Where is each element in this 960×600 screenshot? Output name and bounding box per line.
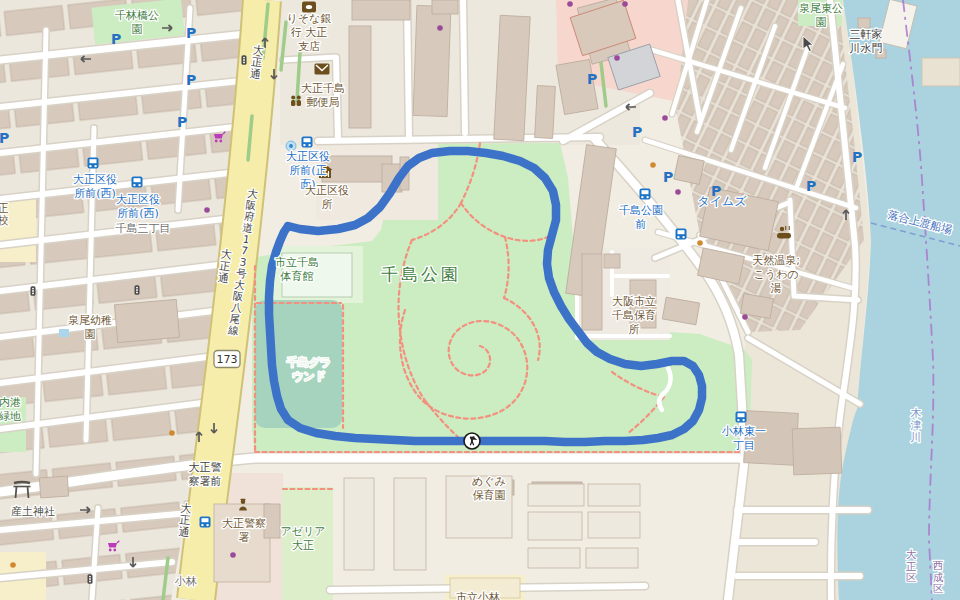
parking-icon: P — [111, 31, 121, 47]
svg-text:173: 173 — [217, 353, 238, 366]
bus-stop-icon — [200, 517, 211, 528]
map-label: めぐみ保育園 — [472, 475, 506, 502]
building — [264, 504, 280, 538]
map-label: 木津川 — [911, 407, 922, 444]
building — [528, 512, 582, 540]
svg-text:P: P — [852, 149, 862, 165]
parking-icon: P — [186, 72, 196, 88]
map-label: 大正区役所前(西) — [73, 173, 117, 200]
map-label: 大正千島郵便局 — [301, 82, 345, 109]
building — [349, 26, 371, 128]
map-label: 正校 — [0, 202, 9, 227]
map-base-tiles: PPPPPPPPPPP173 千林橋公園りそな銀行 大正支店大正千島郵便局大正区… — [0, 0, 960, 600]
parking-icon: P — [852, 149, 862, 165]
shop-dot-icon — [567, 1, 573, 7]
food-dot-icon — [10, 562, 16, 568]
shop-dot-icon — [230, 552, 236, 558]
parking-icon: P — [806, 178, 816, 194]
building — [582, 254, 602, 330]
map-label: 大正区 — [906, 548, 917, 583]
building — [114, 299, 179, 342]
building — [528, 484, 584, 506]
map-label: 千島公園 — [381, 264, 461, 284]
map-label: 産土神社 — [11, 505, 55, 518]
parking-icon: P — [632, 124, 642, 140]
route-start-marker — [464, 433, 480, 449]
bus-stop-icon — [302, 137, 313, 148]
parking-icon: P — [0, 130, 9, 146]
building — [432, 0, 458, 14]
svg-text:P: P — [663, 169, 673, 185]
route-shield-173: 173 — [214, 351, 240, 368]
traffic-signal-icon — [135, 285, 140, 295]
building — [322, 156, 392, 182]
shop-dot-icon — [614, 55, 620, 61]
svg-text:P: P — [0, 130, 9, 146]
building — [792, 427, 842, 475]
svg-text:P: P — [806, 178, 816, 194]
svg-text:P: P — [111, 31, 121, 47]
traffic-signal-icon — [242, 55, 247, 65]
shop-dot-icon — [742, 314, 748, 320]
traffic-signal-icon — [31, 286, 36, 296]
map-canvas[interactable]: PPPPPPPPPPP173 千林橋公園りそな銀行 大正支店大正千島郵便局大正区… — [0, 0, 960, 600]
bus-stop-icon — [676, 229, 687, 240]
map-label: 大正区役所前(西) — [116, 193, 160, 220]
map-label: タイムズ — [697, 194, 747, 208]
bank-icon — [302, 2, 316, 13]
bus-stop-icon — [736, 412, 747, 423]
post-office-icon — [315, 64, 330, 75]
building — [413, 5, 451, 116]
shop-dot-icon — [204, 207, 210, 213]
map-label: 千島三丁目 — [116, 222, 171, 235]
map-label: 市立小林 — [456, 591, 500, 600]
shop-dot-icon — [622, 1, 628, 7]
building — [352, 0, 410, 20]
parking-icon: P — [663, 169, 673, 185]
pool-icon — [59, 329, 69, 337]
map-label: 内港緑地 — [0, 396, 21, 423]
building — [922, 58, 960, 86]
svg-text:P: P — [587, 71, 597, 87]
food-dot-icon — [169, 430, 175, 436]
building — [344, 478, 374, 570]
svg-text:P: P — [186, 72, 196, 88]
parking-icon: P — [587, 71, 597, 87]
map-label: 三軒家川水門 — [850, 28, 883, 55]
parking-icon: P — [186, 25, 196, 41]
food-dot-icon — [697, 240, 703, 246]
building — [394, 478, 426, 570]
building — [586, 548, 638, 568]
shop-dot-icon — [437, 25, 443, 31]
bus-stop-icon — [88, 158, 99, 169]
traffic-signal-icon — [88, 574, 93, 584]
food-dot-icon — [650, 162, 656, 168]
shop-dot-icon — [662, 115, 668, 121]
map-label: 大正警察署前 — [189, 461, 222, 488]
shop-dot-icon — [675, 189, 681, 195]
map-label: 千島グラウンド — [287, 356, 332, 383]
map-label: 西成区 — [933, 559, 944, 594]
svg-text:P: P — [632, 124, 642, 140]
building — [588, 484, 640, 506]
building — [528, 548, 580, 568]
bus-stop-icon — [132, 177, 143, 188]
building — [604, 254, 620, 268]
svg-text:P: P — [177, 114, 187, 130]
building — [494, 15, 530, 140]
building — [588, 512, 640, 538]
map-label: 小林 — [174, 575, 197, 588]
map-label: 市立千島体育館 — [275, 256, 319, 283]
svg-text:P: P — [186, 25, 196, 41]
building — [674, 156, 704, 185]
building — [535, 86, 556, 139]
parking-icon: P — [177, 114, 187, 130]
building — [39, 476, 68, 498]
bus-stop-icon — [640, 189, 651, 200]
building — [858, 18, 870, 28]
